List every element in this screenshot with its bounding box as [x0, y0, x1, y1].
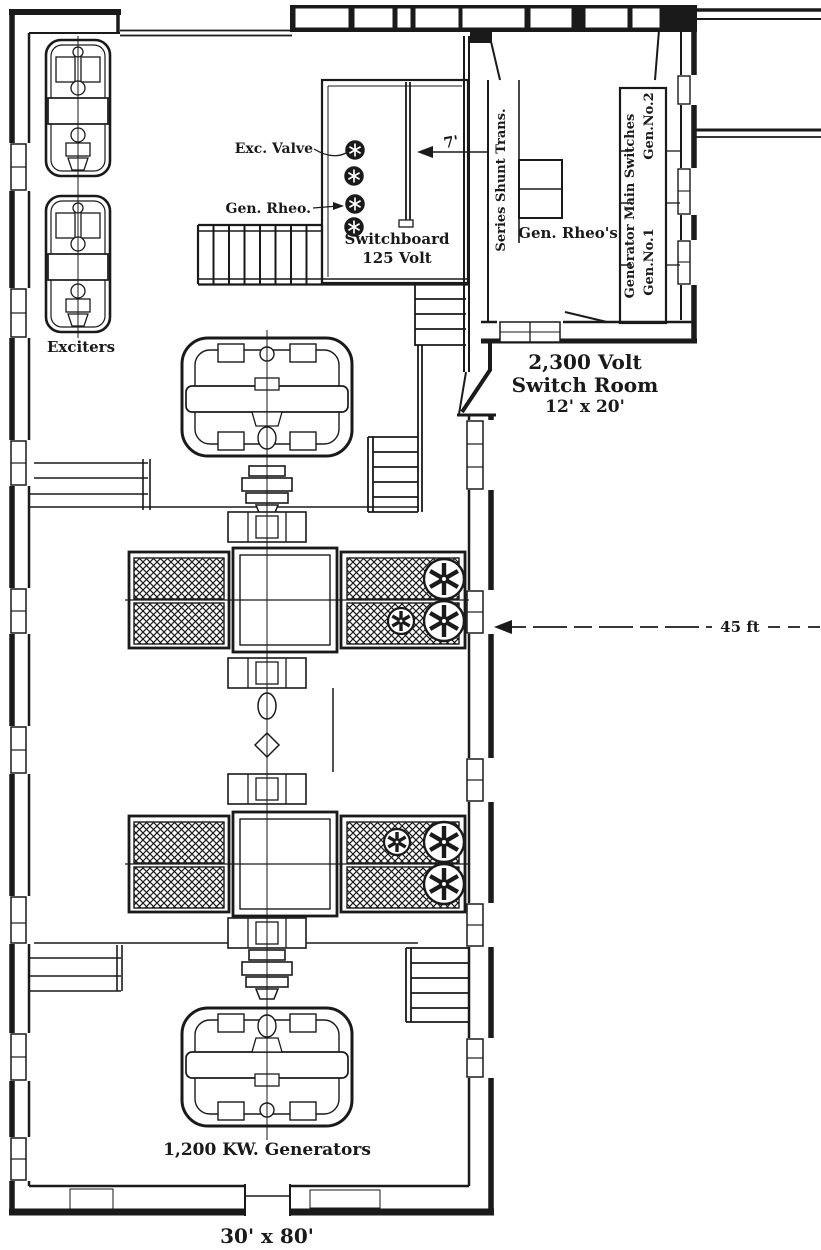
exc-valve-label: Exc. Valve	[235, 141, 313, 157]
gen-rheo-label: Gen. Rheo.	[226, 201, 311, 217]
switchboard-label-line2: 125 Volt	[362, 249, 431, 267]
switch-room-label-line2: Switch Room	[512, 373, 659, 397]
generators-label: 1,200 KW. Generators	[163, 1140, 371, 1160]
gen-no1-label: Gen.No.1	[642, 228, 657, 295]
series-shunt-trans-label: Series Shunt Trans.	[494, 108, 509, 251]
room-size-label: 30' x 80'	[220, 1224, 314, 1248]
gen-rheos-label: Gen. Rheo's	[518, 224, 618, 242]
switchboard-label-line1: Switchboard	[344, 230, 450, 248]
dimension-45ft-label: 45 ft	[720, 618, 760, 636]
dimension-7ft-label: 7'	[442, 132, 460, 152]
scanned-floor-plan-page: 7' 45 ft Exciters Exc. Valve Gen. Rheo. …	[0, 0, 821, 1250]
switch-room-size-label: 12' x 20'	[545, 397, 625, 417]
generator-main-switches-label: Generator Main Switches	[623, 114, 638, 299]
exciters-label: Exciters	[47, 338, 115, 356]
generator-unit-2	[125, 812, 469, 916]
floor-plan-drawing: 7' 45 ft Exciters Exc. Valve Gen. Rheo. …	[0, 0, 821, 1250]
gen-no2-label: Gen.No.2	[642, 92, 657, 159]
bottom-door	[245, 1184, 290, 1216]
generator-rheostats	[519, 160, 562, 218]
switch-room-label-line1: 2,300 Volt	[528, 350, 642, 374]
generator-unit-1	[125, 548, 469, 652]
